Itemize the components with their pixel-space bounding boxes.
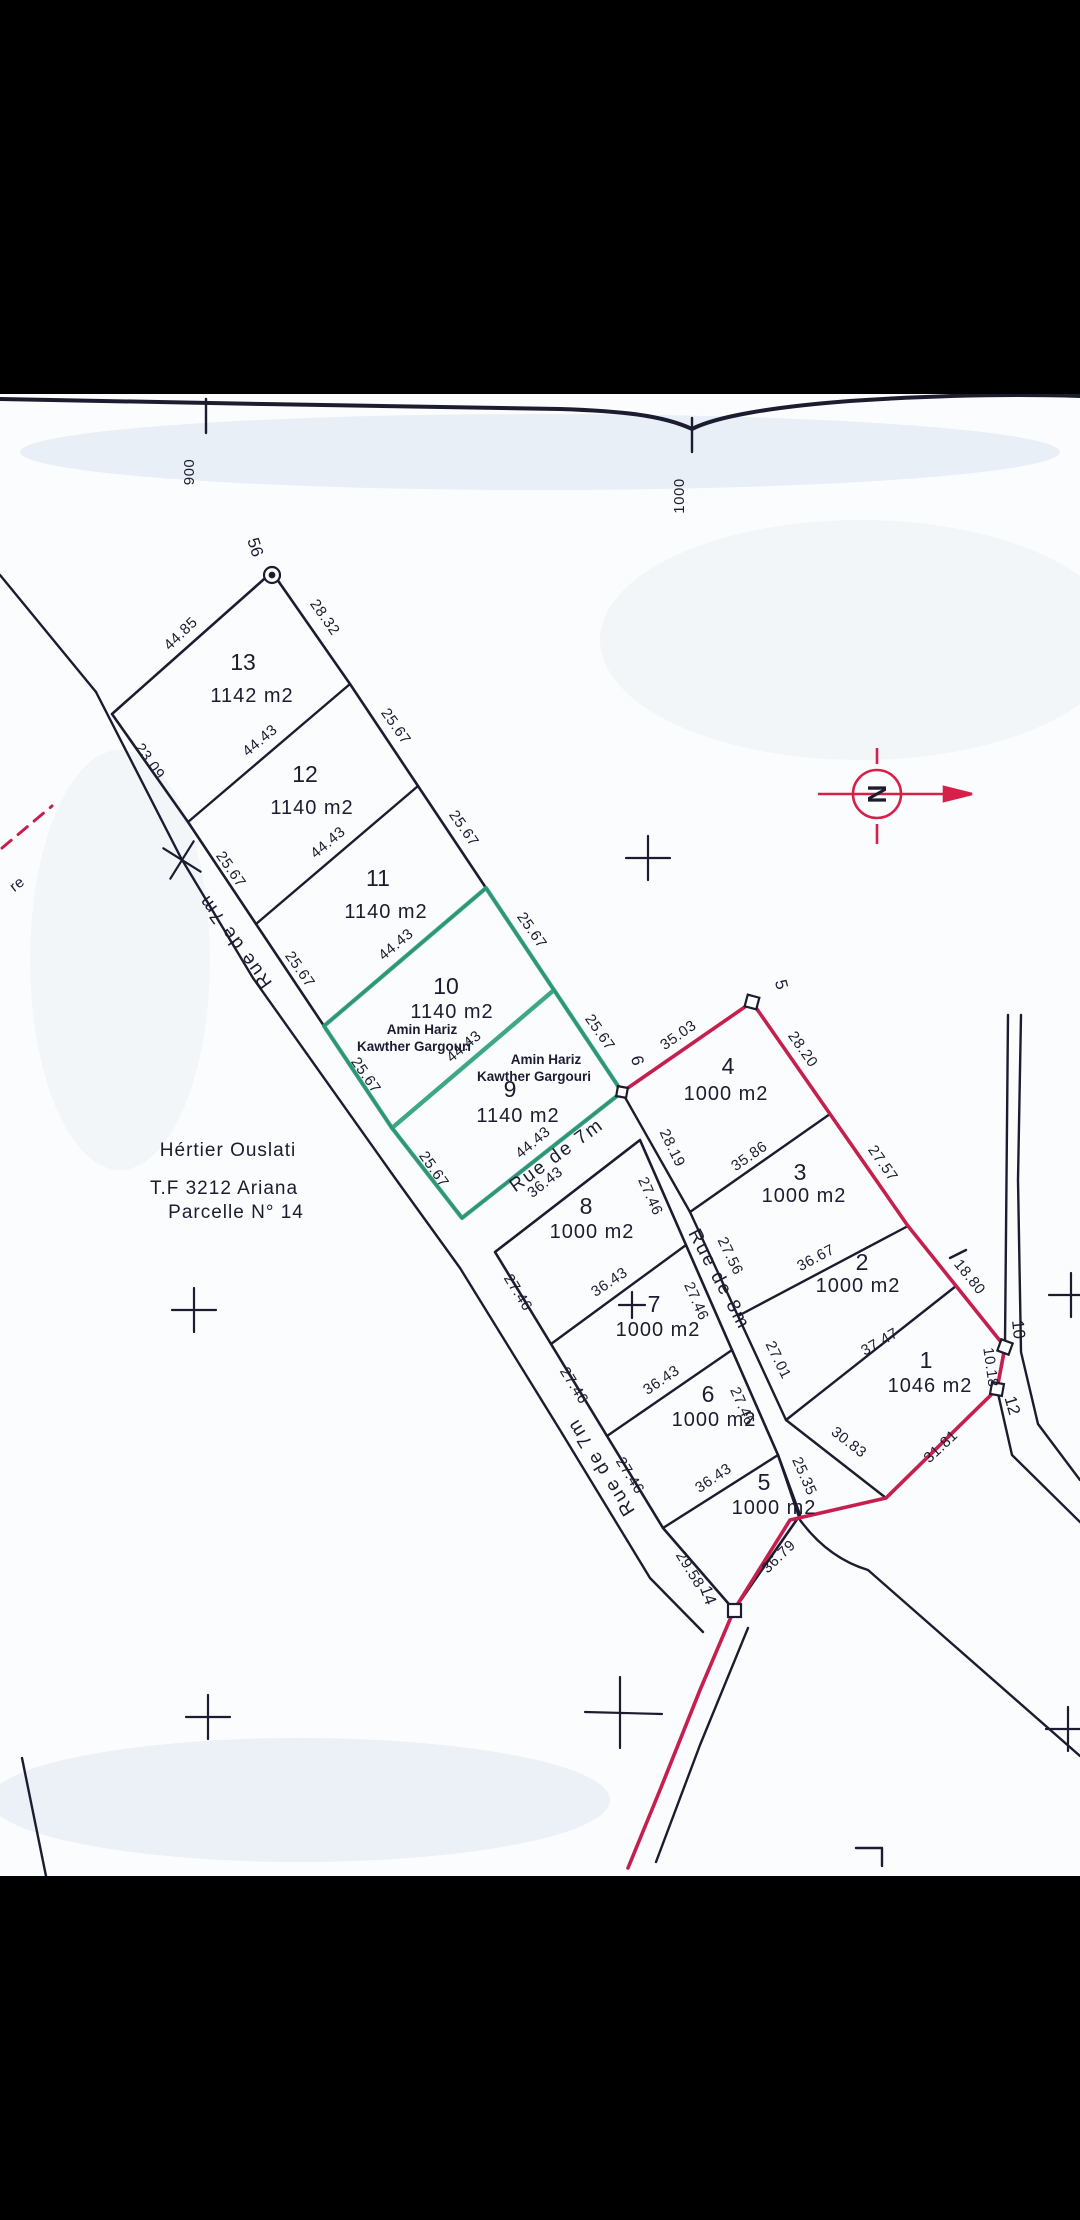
ruler-900-label: 900	[181, 459, 198, 486]
ruler-1000-label: 1000	[671, 478, 688, 513]
parcel-8-number: 8	[580, 1193, 593, 1219]
title-block: Hértier Ouslati T.F 3212 Ariana Parcelle…	[150, 1140, 304, 1223]
letterbox-top	[0, 0, 1080, 394]
parcel-3-number: 3	[794, 1159, 807, 1185]
parcel-9-owner-line2: Kawther Gargouri	[477, 1069, 591, 1084]
title-deed: T.F 3212 Ariana	[150, 1178, 298, 1199]
parcel-6-area: 1000 m2	[672, 1409, 757, 1431]
parcel-1-number: 1	[920, 1347, 933, 1373]
parcel-9-owner-line1: Amin Hariz	[511, 1052, 582, 1067]
parcel-13-area: 1142 m2	[210, 685, 293, 707]
parcel-9-area: 1140 m2	[476, 1105, 559, 1127]
parcel-11-number: 11	[366, 865, 390, 891]
parcel-5-number: 5	[758, 1469, 771, 1495]
north-label: N	[862, 785, 892, 804]
vertex-10-marker	[997, 1339, 1012, 1354]
parcel-10-owner-line2: Kawther Gargouri	[357, 1039, 471, 1054]
parcel-12-number: 12	[292, 761, 318, 787]
parcel-10-number: 10	[433, 973, 459, 999]
title-owner: Hértier Ouslati	[160, 1140, 296, 1161]
parcel-8-area: 1000 m2	[550, 1221, 635, 1243]
vertex-56-dot	[270, 573, 275, 578]
vertex-6-marker	[616, 1086, 628, 1098]
parcel-5-area: 1000 m2	[732, 1497, 817, 1519]
parcel-4-area: 1000 m2	[684, 1083, 769, 1105]
parcel-4-number: 4	[722, 1053, 735, 1079]
parcel-2-number: 2	[856, 1249, 869, 1275]
parcel-2-area: 1000 m2	[816, 1275, 901, 1297]
vertex-5-marker	[745, 995, 760, 1010]
parcel-12-area: 1140 m2	[270, 797, 353, 819]
road-10-label: 10	[1008, 1319, 1029, 1340]
vertex-14-marker	[728, 1604, 741, 1617]
title-parcel: Parcelle N° 14	[168, 1202, 304, 1223]
parcel-3-area: 1000 m2	[762, 1185, 847, 1207]
parcel-11-area: 1140 m2	[344, 901, 427, 923]
parcel-13-number: 13	[230, 649, 256, 675]
parcel-10-area: 1140 m2	[410, 1001, 493, 1023]
parcel-1-area: 1046 m2	[888, 1375, 973, 1397]
parcel-7-number: 7	[648, 1291, 661, 1317]
letterbox-bottom	[0, 1876, 1080, 2220]
phone-screenshot: N 900 1000 56 5 6 10 12 14 re 44.85 28.3…	[0, 0, 1080, 2220]
parcel-6-number: 6	[702, 1381, 715, 1407]
parcel-7-area: 1000 m2	[616, 1319, 701, 1341]
parcel-10-owner-line1: Amin Hariz	[387, 1022, 458, 1037]
